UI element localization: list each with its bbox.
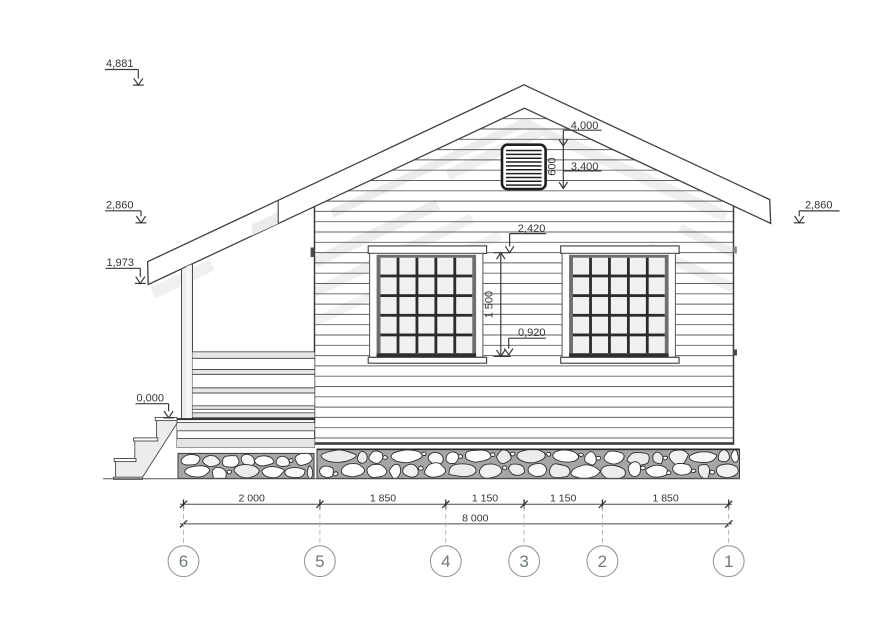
- svg-text:2,860: 2,860: [805, 200, 833, 212]
- svg-text:4: 4: [441, 552, 450, 571]
- svg-text:600: 600: [547, 157, 559, 175]
- svg-text:3: 3: [519, 552, 528, 571]
- svg-text:4,881: 4,881: [106, 58, 134, 70]
- svg-text:1 850: 1 850: [652, 493, 678, 505]
- svg-text:0,000: 0,000: [137, 393, 165, 405]
- svg-text:1 150: 1 150: [550, 493, 576, 505]
- svg-text:1 150: 1 150: [472, 493, 498, 505]
- svg-text:2: 2: [598, 552, 607, 571]
- svg-text:1,973: 1,973: [107, 257, 135, 269]
- svg-text:1 500: 1 500: [483, 291, 495, 319]
- svg-text:6: 6: [179, 552, 188, 571]
- svg-text:0,920: 0,920: [518, 327, 546, 339]
- svg-text:2,860: 2,860: [106, 200, 134, 212]
- svg-text:1: 1: [724, 552, 733, 571]
- svg-text:8 000: 8 000: [462, 512, 488, 524]
- svg-text:2 000: 2 000: [239, 493, 265, 505]
- svg-text:5: 5: [315, 552, 324, 571]
- svg-text:1 850: 1 850: [370, 493, 396, 505]
